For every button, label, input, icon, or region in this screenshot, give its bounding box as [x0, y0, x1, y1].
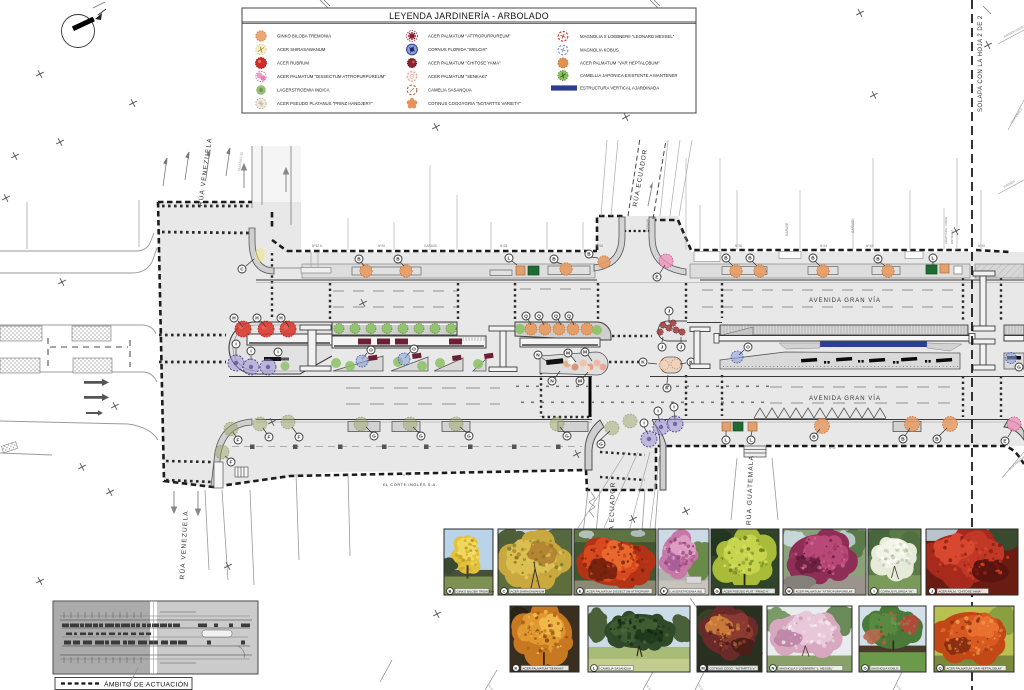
svg-text:ACER PSEUDO PLAT. "PRINZ H.": ACER PSEUDO PLAT. "PRINZ H." [724, 589, 770, 593]
svg-text:ACER SHIRASAWANUM: ACER SHIRASAWANUM [511, 589, 545, 593]
svg-text:H: H [255, 316, 259, 322]
svg-text:ACER PALMATUM "CHITOSE YAMA": ACER PALMATUM "CHITOSE YAMA" [428, 61, 501, 66]
svg-text:AVENIDA GRAN VÍA: AVENIDA GRAN VÍA [809, 297, 881, 304]
svg-text:E: E [579, 589, 582, 594]
svg-text:LEYENDA JARDINERÍA - ARBOLADO: LEYENDA JARDINERÍA - ARBOLADO [389, 11, 549, 21]
svg-text:F: F [298, 435, 301, 441]
svg-text:G: G [565, 434, 569, 440]
svg-text:ACER PALMATUM "ATTROPURPUREUM": ACER PALMATUM "ATTROPURPUREUM" [796, 589, 854, 593]
svg-text:ACER PALMATUM "VAR HEPTALOBUM": ACER PALMATUM "VAR HEPTALOBUM" [580, 61, 660, 66]
svg-text:AVENIDA GRAN VÍA: AVENIDA GRAN VÍA [809, 395, 881, 402]
svg-text:N: N [536, 353, 540, 359]
svg-text:Nº26: Nº26 [735, 244, 742, 248]
svg-text:Nº28: Nº28 [500, 244, 507, 248]
svg-text:MAGNOLIA KOBUS: MAGNOLIA KOBUS [872, 666, 899, 670]
svg-text:B: B [357, 257, 361, 263]
svg-text:LAGERSTROEMIA IND.: LAGERSTROEMIA IND. [671, 589, 704, 593]
svg-text:J: J [661, 345, 664, 351]
svg-text:SOLAPA CON LA HOJA 2 DE 2: SOLAPA CON LA HOJA 2 DE 2 [978, 15, 984, 112]
svg-text:CAMELIA SASANQUA: CAMELIA SASANQUA [601, 666, 632, 670]
svg-text:O: O [412, 347, 416, 353]
svg-text:Nº26: Nº26 [378, 244, 385, 248]
svg-text:H: H [788, 589, 791, 594]
svg-text:Nº19: Nº19 [829, 446, 836, 450]
svg-text:ACER RUBRUM: ACER RUBRUM [277, 61, 309, 66]
svg-text:ACER PALMATUM "ATTROPURPUREUM": ACER PALMATUM "ATTROPURPUREUM" [428, 34, 511, 39]
svg-text:CORNUS FLORIDA "W.": CORNUS FLORIDA "W." [881, 589, 914, 593]
svg-text:G: G [467, 434, 471, 440]
svg-text:CAMELLIA JAPÓNICA EXISTENTE A: CAMELLIA JAPÓNICA EXISTENTE A MANTENER [580, 73, 677, 78]
svg-text:Nº16: Nº16 [978, 244, 985, 248]
svg-text:N: N [772, 666, 775, 671]
svg-text:M: M [566, 351, 570, 357]
svg-text:ESTRUCTURA VERTICAL AJARDINADA: ESTRUCTURA VERTICAL AJARDINADA [580, 86, 659, 91]
svg-text:C: C [503, 589, 506, 594]
svg-text:GINKO BILOBA TREMONIA: GINKO BILOBA TREMONIA [277, 34, 331, 39]
svg-text:J: J [668, 309, 671, 315]
svg-text:GARAXE: GARAXE [424, 244, 437, 248]
svg-text:LAGERSTROEMIA INDICA: LAGERSTROEMIA INDICA [277, 88, 330, 93]
svg-text:C: C [240, 267, 244, 273]
svg-text:B: B [449, 589, 452, 594]
svg-text:B: B [876, 257, 880, 263]
svg-text:H: H [232, 316, 236, 322]
svg-text:N: N [550, 379, 554, 385]
svg-text:G: G [419, 434, 423, 440]
svg-text:B: B [552, 257, 556, 263]
svg-text:J: J [931, 589, 933, 594]
svg-text:B: B [812, 435, 816, 441]
svg-text:Q: Q [537, 314, 541, 320]
svg-text:O: O [746, 345, 750, 351]
svg-text:Q: Q [567, 314, 571, 320]
svg-text:ACER PALM. "CHITOSE YAMA": ACER PALM. "CHITOSE YAMA" [939, 589, 982, 593]
svg-text:ADAPTADA - ONCE: ADAPTADA - ONCE [944, 217, 948, 244]
svg-text:MAGNOLIA X LOEBNERII "L. MESSE: MAGNOLIA X LOEBNERII "L. MESSEL" [780, 666, 834, 670]
svg-text:GARAXE: GARAXE [851, 220, 855, 233]
svg-text:GARAXE: GARAXE [785, 223, 789, 236]
svg-text:F: F [237, 438, 240, 444]
svg-text:Q: Q [524, 314, 528, 320]
svg-text:Nº24: Nº24 [820, 244, 827, 248]
svg-text:Q: Q [938, 666, 941, 671]
svg-text:GINKO BILOBA TREMONIA: GINKO BILOBA TREMONIA [457, 589, 495, 593]
svg-text:MAGNOLIA X LOEBNERII "LEONARD: MAGNOLIA X LOEBNERII "LEONARD MESSEL" [580, 34, 675, 39]
svg-text:L: L [508, 256, 511, 262]
svg-text:G: G [1017, 365, 1021, 371]
svg-text:F: F [268, 435, 271, 441]
svg-text:M: M [578, 379, 582, 385]
svg-text:I: I [873, 589, 874, 594]
svg-text:COTINUS COGG. "NOTARTTS V.": COTINUS COGG. "NOTARTTS V." [710, 666, 757, 670]
svg-text:CORNUS FLORIDA "WELCHI": CORNUS FLORIDA "WELCHI" [428, 47, 488, 52]
svg-text:CAMELIA SASANQUA: CAMELIA SASANQUA [428, 88, 472, 93]
svg-text:B: B [587, 252, 591, 258]
svg-text:COTINUS COGGYGRIA "NOTARTTS VA: COTINUS COGGYGRIA "NOTARTTS VARIETY" [428, 101, 522, 106]
svg-text:ENTRADA: ENTRADA [950, 230, 954, 244]
svg-text:ACER SHIRASAWANUM: ACER SHIRASAWANUM [277, 47, 326, 52]
svg-text:M: M [583, 350, 587, 356]
svg-text:B: B [724, 256, 728, 262]
svg-text:B: B [901, 437, 905, 443]
svg-text:L: L [725, 438, 728, 444]
svg-text:EL CORTE INGLÉS S.A.: EL CORTE INGLÉS S.A. [383, 482, 437, 487]
svg-text:ACER PALMATUM "SENKAKI": ACER PALMATUM "SENKAKI" [428, 74, 488, 79]
svg-text:G: G [715, 589, 718, 594]
svg-text:ACER PALMATUM "VAR HEPTALOBUM": ACER PALMATUM "VAR HEPTALOBUM" [947, 666, 1003, 670]
svg-text:Nº16: Nº16 [596, 244, 603, 248]
svg-text:MAGNOLIA KOBUS: MAGNOLIA KOBUS [580, 48, 619, 53]
svg-text:J: J [680, 345, 683, 351]
svg-text:G: G [372, 434, 376, 440]
svg-text:H: H [279, 316, 283, 322]
svg-text:B: B [396, 257, 400, 263]
svg-text:K: K [515, 666, 518, 671]
svg-text:O: O [369, 348, 373, 354]
svg-text:ACER PALMATUM "SENKAKI": ACER PALMATUM "SENKAKI" [523, 666, 564, 670]
svg-text:G: G [599, 442, 603, 448]
svg-text:Nº71: Nº71 [403, 473, 410, 477]
svg-text:ACER PSEUDO PLATANUS "PRINZ HA: ACER PSEUDO PLATANUS "PRINZ HANDJERY" [277, 101, 373, 106]
svg-text:Q: Q [554, 314, 558, 320]
svg-text:K: K [641, 360, 645, 366]
svg-text:O: O [863, 666, 866, 671]
svg-text:ACER PALMATUM DISSECTUM ATTROP: ACER PALMATUM DISSECTUM ATTROPURP. [587, 589, 650, 593]
svg-text:L: L [932, 256, 935, 262]
svg-text:ÁMBITO DE ACTUACIÓN: ÁMBITO DE ACTUACIÓN [104, 680, 189, 689]
svg-text:L: L [750, 438, 753, 444]
svg-text:Nº32 A: Nº32 A [312, 244, 323, 248]
svg-text:F: F [230, 460, 233, 466]
svg-text:B: B [811, 256, 815, 262]
svg-text:B: B [748, 256, 752, 262]
svg-text:B: B [935, 437, 939, 443]
svg-text:ACER PALMATUM "DISSECTUM ATTRO: ACER PALMATUM "DISSECTUM ATTROPURPUREUM" [277, 74, 386, 79]
svg-text:Nº16: Nº16 [866, 244, 873, 248]
